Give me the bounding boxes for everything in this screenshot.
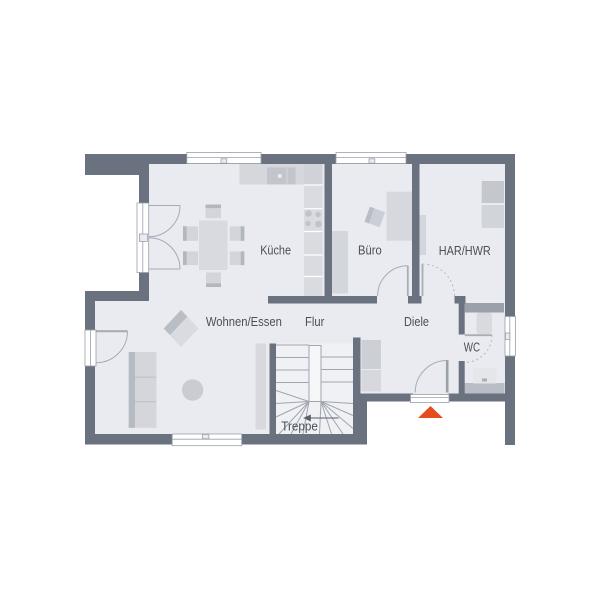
- svg-text:Flur: Flur: [305, 314, 325, 329]
- svg-text:Treppe: Treppe: [281, 418, 318, 433]
- svg-text:Wohnen/Essen: Wohnen/Essen: [206, 314, 282, 329]
- svg-text:Diele: Diele: [404, 314, 429, 329]
- svg-text:HAR/HWR: HAR/HWR: [439, 243, 491, 258]
- svg-text:Küche: Küche: [260, 242, 291, 257]
- svg-text:WC: WC: [464, 339, 480, 354]
- svg-text:Büro: Büro: [358, 242, 382, 257]
